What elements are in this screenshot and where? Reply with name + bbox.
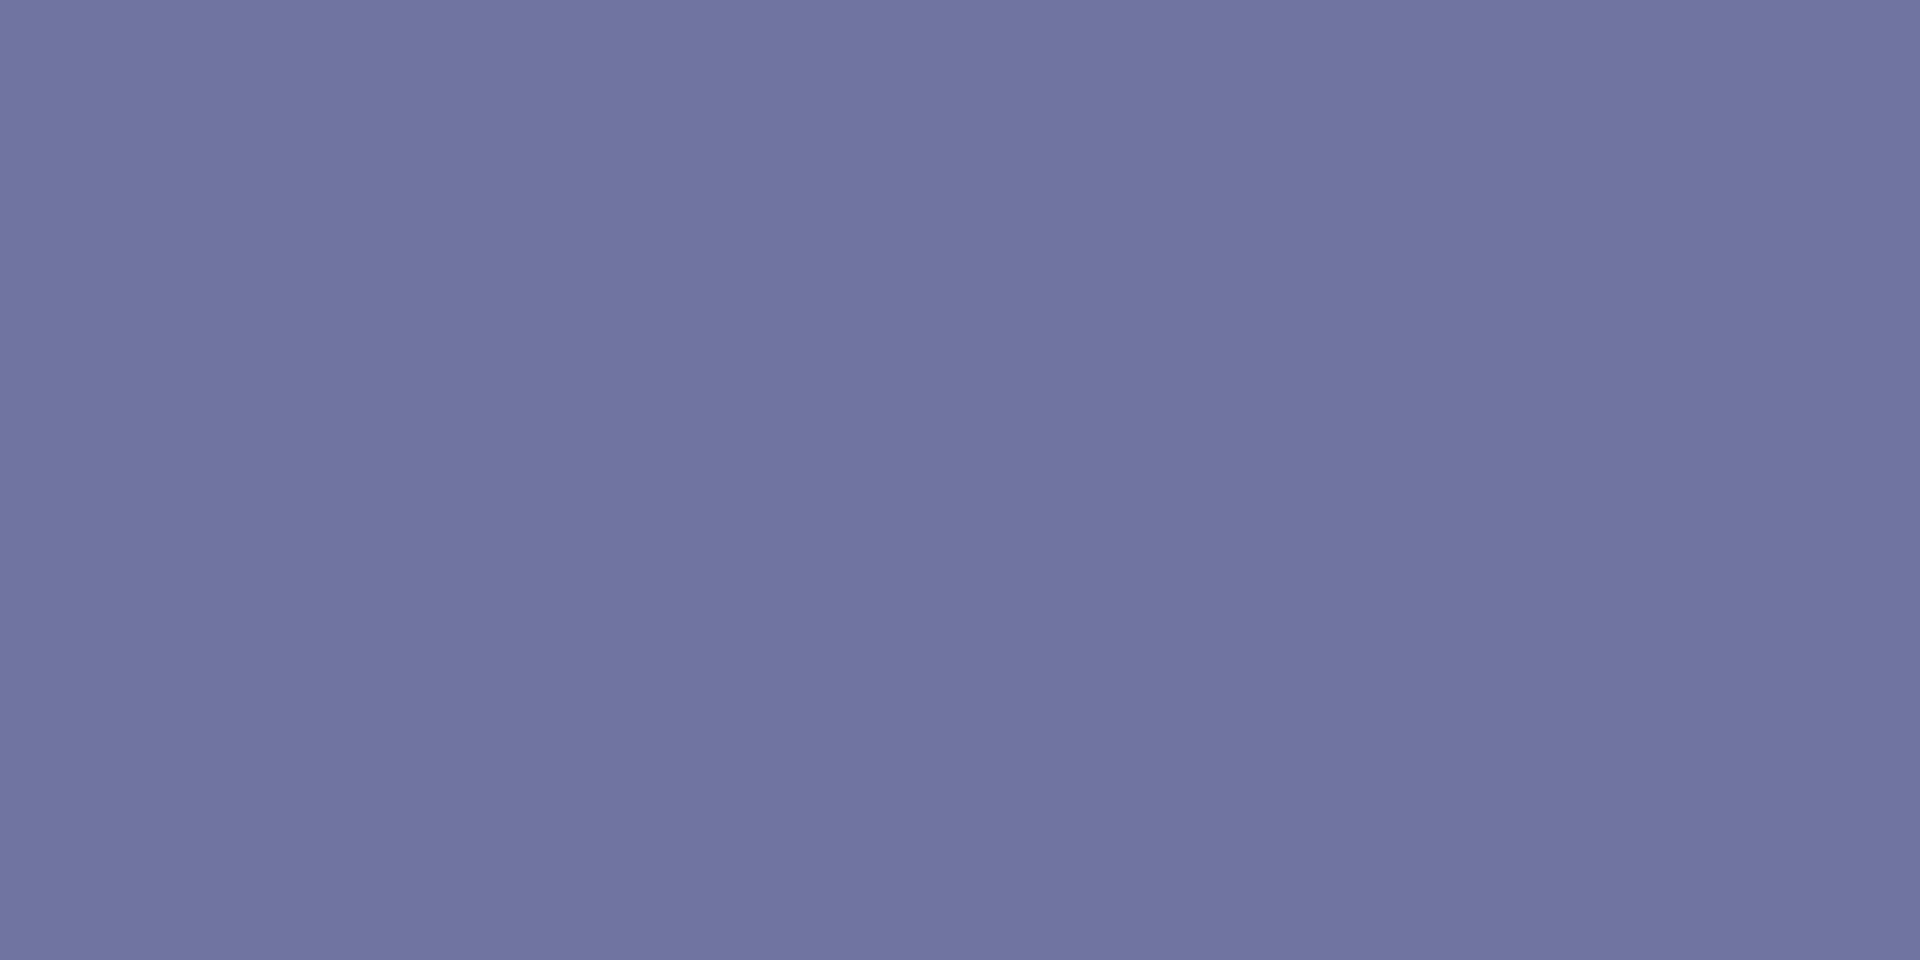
aerial-city-rendering — [0, 0, 1920, 960]
city-rendering-canvas — [0, 0, 1920, 960]
